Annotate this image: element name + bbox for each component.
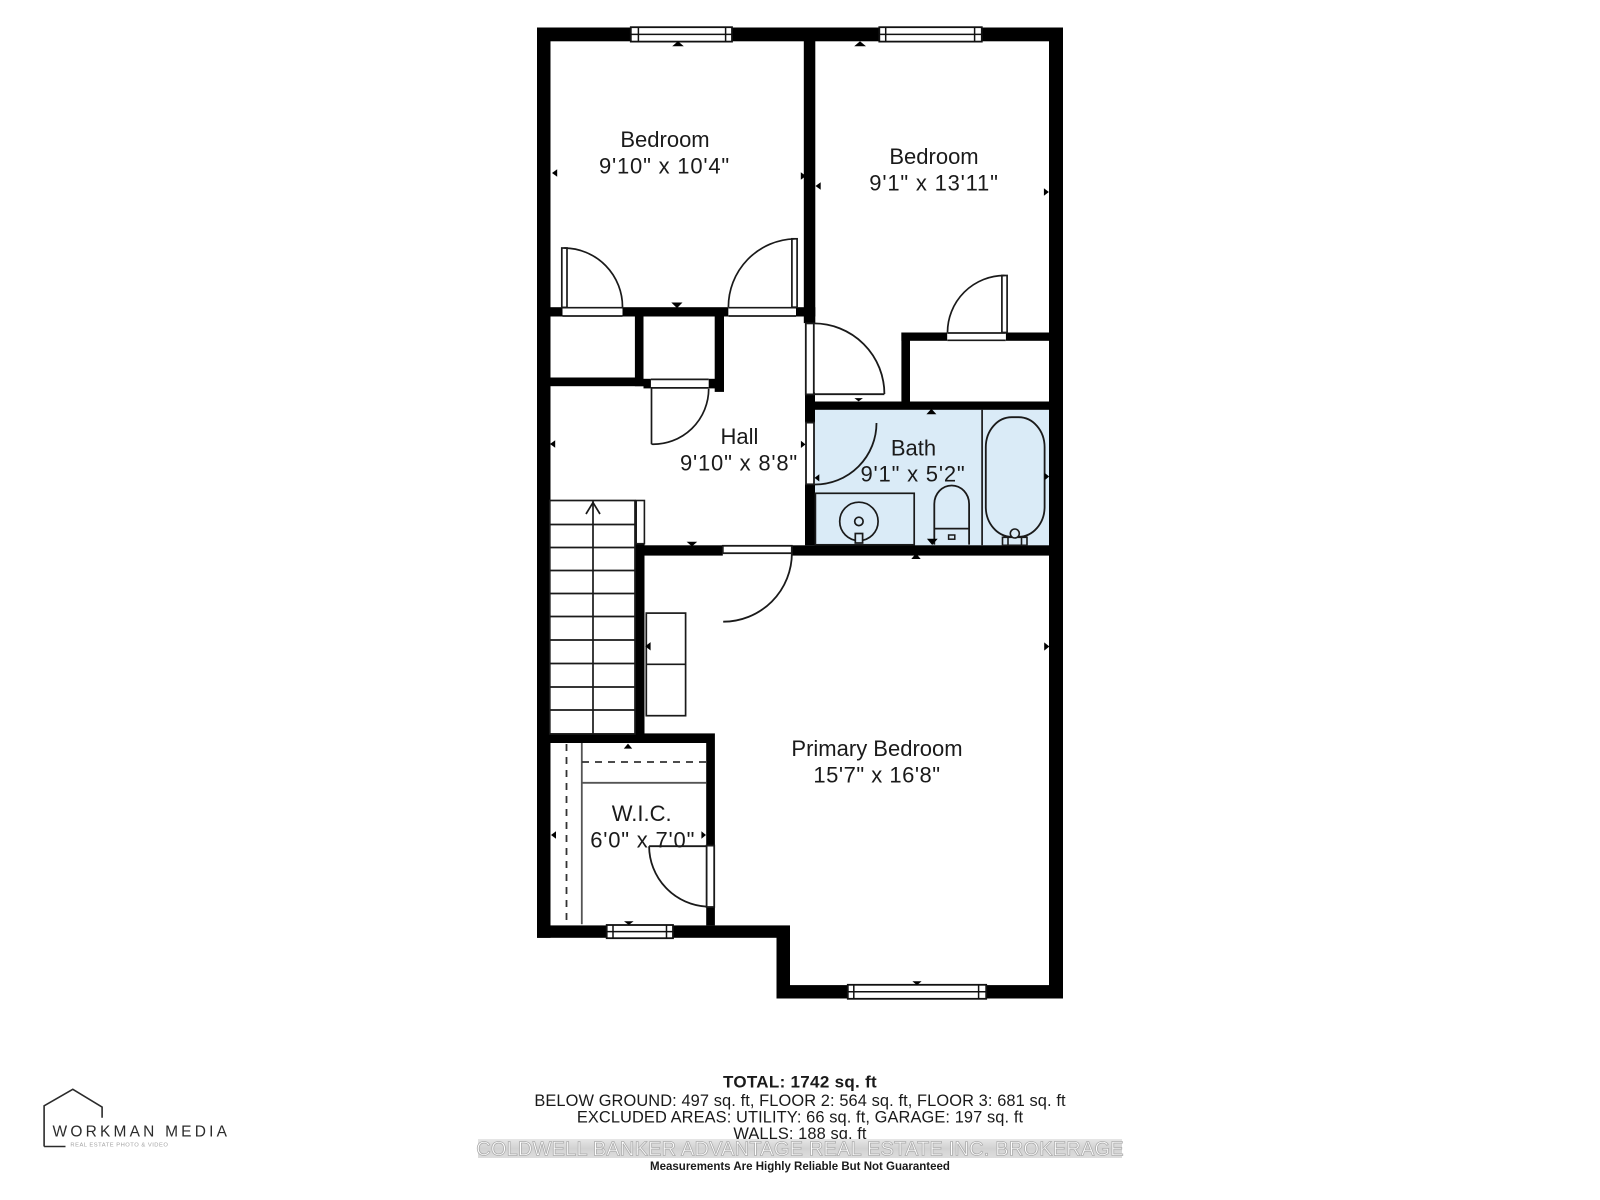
- svg-text:BELOW GROUND: 497 sq. ft, FLOO: BELOW GROUND: 497 sq. ft, FLOOR 2: 564 s…: [534, 1092, 1066, 1110]
- svg-text:W.I.C.: W.I.C.: [612, 801, 672, 826]
- svg-text:9'10" x 8'8": 9'10" x 8'8": [680, 451, 798, 476]
- svg-text:Bedroom: Bedroom: [889, 144, 978, 169]
- svg-text:9'1" x 5'2": 9'1" x 5'2": [861, 462, 966, 487]
- svg-text:Measurements Are Highly Reliab: Measurements Are Highly Reliable But Not…: [650, 1161, 950, 1173]
- svg-text:REAL ESTATE PHOTO & VIDEO: REAL ESTATE PHOTO & VIDEO: [70, 1143, 168, 1149]
- svg-text:COLDWELL BANKER ADVANTAGE REAL: COLDWELL BANKER ADVANTAGE REAL ESTATE IN…: [476, 1139, 1124, 1161]
- svg-text:6'0" x 7'0": 6'0" x 7'0": [590, 827, 695, 852]
- svg-text:Hall: Hall: [721, 424, 759, 449]
- svg-text:Bath: Bath: [891, 436, 936, 461]
- svg-text:Bedroom: Bedroom: [620, 127, 709, 152]
- svg-text:EXCLUDED AREAS: UTILITY: 66 sq: EXCLUDED AREAS: UTILITY: 66 sq. ft, GARA…: [577, 1109, 1024, 1127]
- svg-text:WORKMAN MEDIA: WORKMAN MEDIA: [53, 1123, 231, 1140]
- svg-text:9'10" x 10'4": 9'10" x 10'4": [599, 154, 730, 179]
- svg-text:TOTAL: 1742 sq. ft: TOTAL: 1742 sq. ft: [723, 1073, 877, 1092]
- svg-text:9'1" x 13'11": 9'1" x 13'11": [869, 171, 998, 196]
- svg-text:Primary Bedroom: Primary Bedroom: [791, 736, 962, 761]
- svg-text:15'7" x 16'8": 15'7" x 16'8": [813, 763, 940, 788]
